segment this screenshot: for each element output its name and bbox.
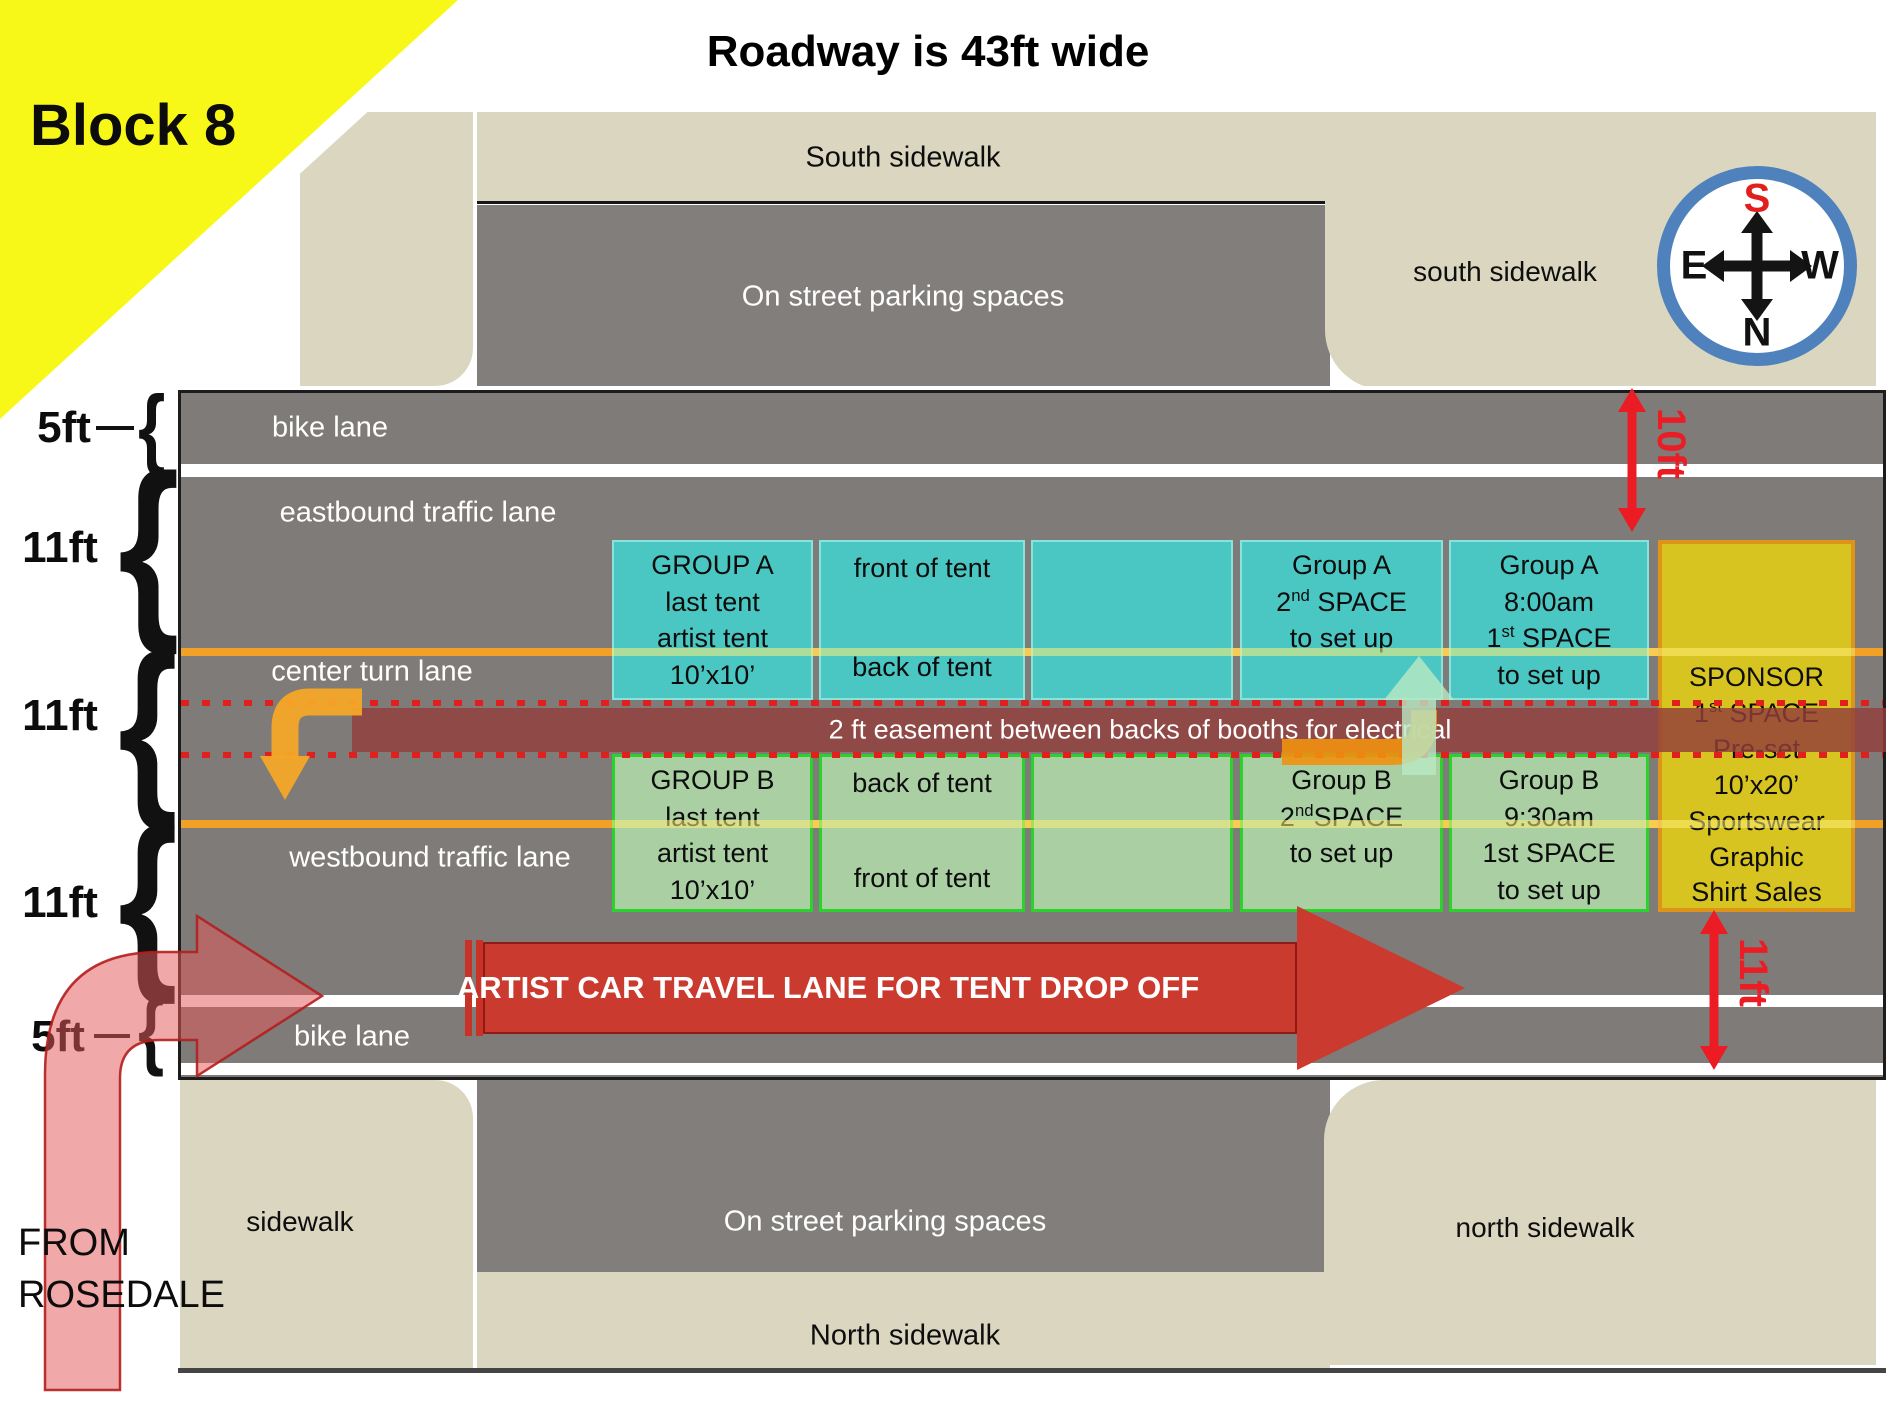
booth-line: Group A	[1292, 547, 1391, 584]
booth-line: 1st SPACE	[1482, 835, 1615, 872]
label-parking-north: On street parking spaces	[724, 1206, 1046, 1239]
label-11ft-westbound: 11ft	[22, 878, 98, 928]
booth-line: 10’x10’	[670, 657, 756, 694]
label-parking-south: On street parking spaces	[742, 281, 1064, 314]
booth-a-front-back: front of tentback of tent	[819, 540, 1025, 700]
booth-group-a-1st-space: Group A8:00am1st SPACEto set up	[1449, 540, 1649, 700]
artist-arrow-head	[1297, 906, 1465, 1070]
label-bike-lane-south: bike lane	[272, 412, 388, 445]
booth-line: to set up	[1497, 657, 1601, 694]
booth-line: front of tent	[854, 860, 991, 897]
booth-a-empty	[1031, 540, 1233, 700]
brace-eastbound: {	[118, 446, 180, 644]
booth-line: 2nd SPACE	[1276, 584, 1407, 621]
lane-line-white-south	[181, 464, 1883, 477]
easement-dotted-line-bottom	[181, 752, 1883, 758]
booth-line: Shirt Sales	[1691, 875, 1822, 911]
compass-south: S	[1744, 177, 1771, 222]
booth-line: 8:00am	[1504, 584, 1594, 621]
label-north-sidewalk-right: north sidewalk	[1456, 1212, 1635, 1244]
label-south-sidewalk: South sidewalk	[805, 142, 1000, 175]
booth-line: front of tent	[854, 550, 991, 587]
booth-line: Graphic	[1709, 840, 1804, 876]
booth-line: 9:30am	[1504, 799, 1594, 836]
booth-line: last tent	[665, 584, 760, 621]
label-eastbound-lane: eastbound traffic lane	[280, 497, 557, 530]
booth-line: SPONSOR	[1689, 660, 1824, 696]
label-11ft-eastbound: 11ft	[22, 523, 98, 573]
booth-group-a-2nd-space: Group A2nd SPACEto set up	[1240, 540, 1443, 700]
label-11ft-right: 11ft	[1730, 938, 1775, 1007]
label-5ft-north: 5ft	[31, 1012, 85, 1062]
compass-east: E	[1681, 244, 1708, 289]
label-11ft-center: 11ft	[22, 691, 98, 741]
block-title: Block 8	[30, 92, 236, 159]
label-10ft: 10ft	[1648, 408, 1693, 479]
booth-line: GROUP B	[650, 762, 774, 799]
dash-5ft-top	[96, 426, 134, 430]
booth-b-empty	[1031, 754, 1233, 912]
label-bike-lane-north: bike lane	[294, 1021, 410, 1054]
booth-line: last tent	[665, 799, 760, 836]
booth-line: artist tent	[657, 835, 768, 872]
booth-line: GROUP A	[651, 547, 774, 584]
booth-line: 2ndSPACE	[1280, 799, 1403, 836]
label-rosedale: ROSEDALE	[18, 1274, 225, 1317]
label-from: FROM	[18, 1222, 130, 1265]
label-north-sidewalk: North sidewalk	[810, 1320, 1000, 1353]
page-title: Roadway is 43ft wide	[707, 27, 1150, 77]
label-sidewalk-left: sidewalk	[246, 1206, 353, 1238]
booth-line: to set up	[1290, 835, 1394, 872]
brace-bike-north: {	[138, 988, 164, 1072]
lane-line-through-booths-lower	[612, 820, 1855, 828]
booth-line: 10’x20’	[1714, 768, 1800, 804]
booth-group-b-last-tent: GROUP Blast tentartist tent10’x10’	[612, 754, 813, 912]
compass-west: W	[1801, 244, 1839, 289]
south-sidewalk-left-block	[300, 112, 473, 386]
booth-b-back-front: back of tentfront of tent	[819, 754, 1025, 912]
label-center-turn-lane: center turn lane	[271, 656, 473, 689]
lane-line-white-curb	[181, 1063, 1883, 1075]
booth-line: Group A	[1499, 547, 1598, 584]
label-south-sidewalk-right: south sidewalk	[1413, 256, 1597, 288]
compass: S N E W	[1657, 166, 1857, 366]
label-artist-lane: ARTIST CAR TRAVEL LANE FOR TENT DROP OFF	[457, 970, 1199, 1006]
booth-line: Group B	[1291, 762, 1392, 799]
booth-group-b-1st-space: Group B9:30am1st SPACEto set up	[1449, 754, 1649, 912]
diagram-bottom-edge	[178, 1368, 1886, 1373]
booth-line: back of tent	[852, 765, 992, 802]
compass-north: N	[1743, 311, 1772, 356]
lane-line-through-booths-upper	[612, 648, 1855, 656]
booth-line: Group B	[1499, 762, 1600, 799]
label-westbound-lane: westbound traffic lane	[289, 842, 571, 875]
parking-area-north	[477, 1080, 1330, 1272]
easement-dotted-line-top	[181, 700, 1883, 706]
booth-line: to set up	[1497, 872, 1601, 909]
booth-line: 10’x10’	[670, 872, 756, 909]
slide-canvas: bike lane eastbound traffic lane center …	[0, 0, 1900, 1425]
label-easement: 2 ft easement between backs of booths fo…	[829, 715, 1452, 746]
booth-group-b-2nd-space: Group B2ndSPACEto set up	[1240, 754, 1443, 912]
booth-group-a-last-tent: GROUP Alast tentartist tent10’x10’	[612, 540, 813, 700]
brace-westbound: {	[118, 802, 178, 994]
dash-5ft-bottom	[94, 1034, 130, 1038]
label-5ft-south: 5ft	[37, 403, 91, 453]
